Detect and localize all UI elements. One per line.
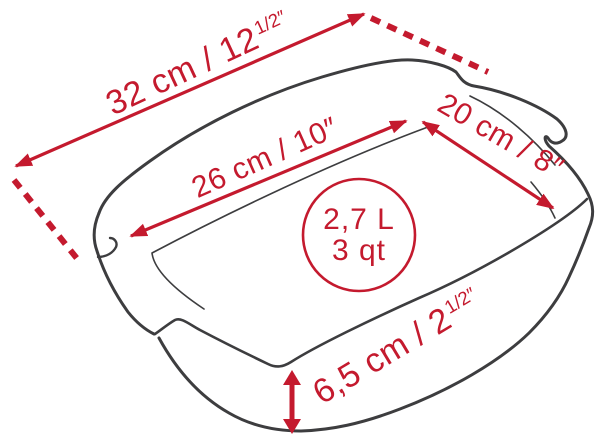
capacity-quarts: 3 qt <box>323 235 395 266</box>
capacity-liters: 2,7 L <box>323 204 395 235</box>
extension-line-left <box>14 180 79 261</box>
dish-left-rim-hook <box>98 238 117 257</box>
height-arrowhead-top <box>283 370 301 385</box>
bakeware-line-art <box>0 0 600 437</box>
capacity-badge: 2,7 L 3 qt <box>323 204 395 266</box>
dimension-diagram: 32 cm / 121/2″ 26 cm / 10″ 20 cm / 8″ 6,… <box>0 0 600 437</box>
extension-line-right <box>371 18 488 72</box>
